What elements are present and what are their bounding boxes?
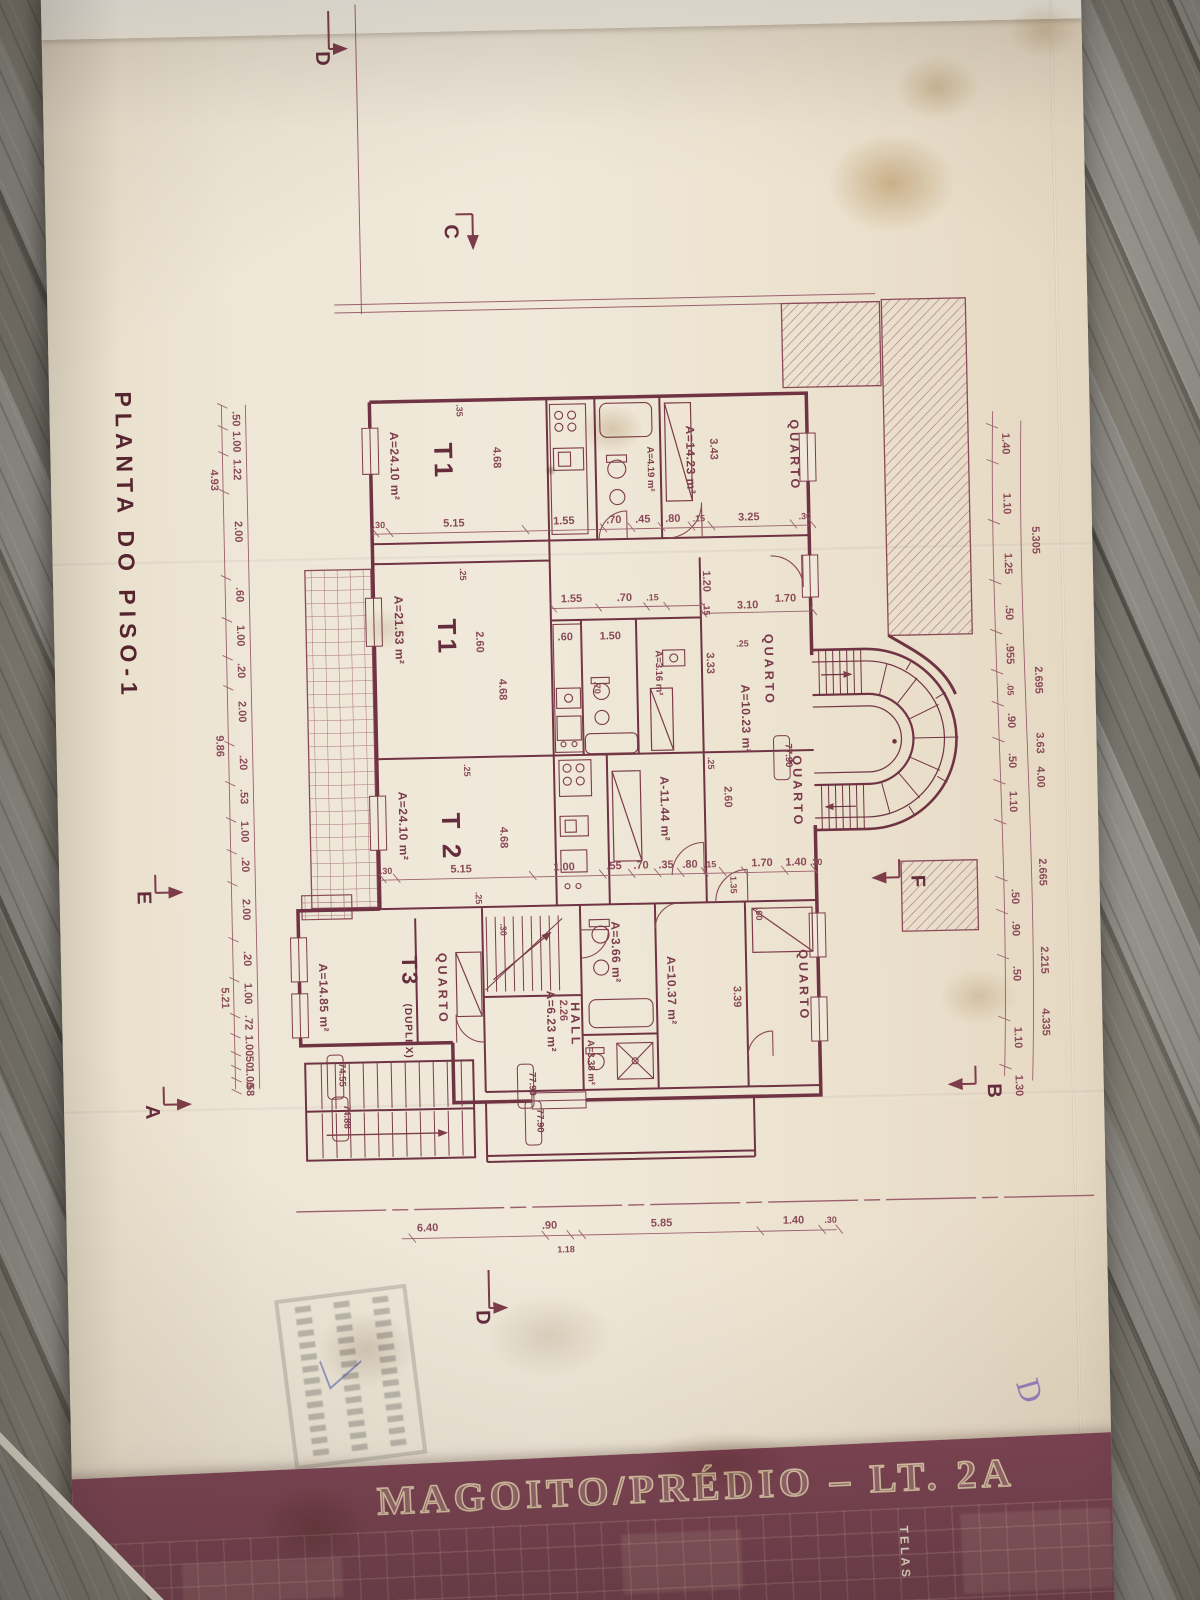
svg-text:.30: .30 bbox=[498, 923, 508, 936]
room-label-quarto-t3: QUARTO bbox=[435, 953, 451, 1025]
room-area: A=14.85 m² bbox=[316, 963, 331, 1032]
svg-text:.35: .35 bbox=[658, 859, 674, 871]
svg-text:.60: .60 bbox=[233, 587, 245, 603]
svg-text:.60: .60 bbox=[558, 631, 574, 643]
svg-text:.53: .53 bbox=[237, 789, 249, 805]
section-letter-c: C bbox=[440, 224, 462, 239]
room-label-quarto-bottom: QUARTO bbox=[796, 949, 812, 1021]
sheet-title: PLANTA DO PISO-1 bbox=[110, 391, 142, 701]
room-area: A=10.23 m² bbox=[738, 684, 753, 753]
svg-text:1.00: 1.00 bbox=[230, 431, 242, 453]
svg-text:2.00: 2.00 bbox=[232, 521, 244, 543]
svg-text:2.665: 2.665 bbox=[1036, 858, 1049, 886]
svg-text:.05: .05 bbox=[1005, 683, 1015, 696]
elevation-value: 74.88 bbox=[341, 1105, 352, 1129]
svg-text:6.40: 6.40 bbox=[417, 1222, 439, 1234]
room-label-t3-duplex: (DUPLEX) bbox=[402, 1003, 414, 1058]
svg-text:2.00: 2.00 bbox=[236, 701, 248, 723]
svg-text:1.00: 1.00 bbox=[553, 861, 575, 873]
svg-text:2.26: 2.26 bbox=[557, 1000, 569, 1022]
svg-text:3.63: 3.63 bbox=[1033, 732, 1045, 754]
room-area: A=14.23 m² bbox=[683, 425, 698, 494]
svg-text:1.18: 1.18 bbox=[557, 1244, 575, 1254]
svg-text:.80: .80 bbox=[682, 859, 698, 871]
svg-text:.50: .50 bbox=[1009, 889, 1021, 905]
svg-text:1.22: 1.22 bbox=[230, 459, 242, 481]
svg-text:.25: .25 bbox=[474, 892, 484, 905]
svg-text:1.70: 1.70 bbox=[775, 592, 797, 604]
section-letter-b: B bbox=[983, 1083, 1005, 1098]
room-label-hall: HALL bbox=[568, 1002, 583, 1048]
svg-text:1.00: 1.00 bbox=[238, 821, 250, 843]
right-dimension-chain: 1.40 1.10 1.25 .50 .955 .05 .90 .50 1.10… bbox=[999, 432, 1053, 1096]
room-label-t3: T3 bbox=[397, 955, 423, 987]
room-label-t1-mid: T1 bbox=[432, 618, 463, 657]
svg-text:3.33: 3.33 bbox=[704, 652, 716, 674]
ink-stamp bbox=[275, 1284, 427, 1469]
svg-text:1.10: 1.10 bbox=[1012, 1027, 1024, 1049]
svg-text:9.86: 9.86 bbox=[213, 735, 225, 757]
svg-text:.90: .90 bbox=[1009, 921, 1021, 937]
room-area: A=10.37 m² bbox=[664, 956, 679, 1025]
svg-text:3.39: 3.39 bbox=[731, 986, 743, 1008]
photo-of-floor-plan: PLANTA DO PISO-1 D C E F A B D bbox=[0, 0, 1200, 1600]
svg-text:1.25: 1.25 bbox=[1002, 553, 1014, 575]
svg-text:.50: .50 bbox=[1010, 966, 1022, 982]
svg-text:.50: .50 bbox=[1006, 753, 1018, 769]
svg-text:3.25: 3.25 bbox=[738, 511, 760, 523]
svg-text:1.55: 1.55 bbox=[561, 593, 583, 605]
elevation-value: 74.55 bbox=[336, 1063, 348, 1088]
elevation-value: 77.90 bbox=[534, 1109, 545, 1133]
main-curved-stair bbox=[812, 647, 961, 830]
room-area: A=24.10 m² bbox=[387, 432, 402, 501]
svg-text:.50: .50 bbox=[1003, 605, 1015, 621]
svg-text:5.21: 5.21 bbox=[219, 987, 231, 1009]
elevation-value: 77.90 bbox=[526, 1072, 537, 1096]
paper-sheet: PLANTA DO PISO-1 D C E F A B D bbox=[40, 0, 1115, 1600]
room-area: A-11.44 m² bbox=[657, 776, 672, 841]
room-label-t2: T 2 bbox=[436, 812, 467, 862]
svg-text:1.40: 1.40 bbox=[783, 1214, 805, 1226]
svg-text:.45: .45 bbox=[635, 513, 651, 525]
svg-text:.58: .58 bbox=[243, 1081, 255, 1097]
svg-text:.70: .70 bbox=[606, 514, 622, 526]
svg-text:.30: .30 bbox=[824, 1215, 837, 1225]
svg-text:.30: .30 bbox=[380, 866, 393, 876]
room-area: A=6.23 m² bbox=[544, 990, 559, 1052]
left-dimension-chain: .50 1.00 1.22 2.00 .60 1.00 .20 2.00 .20… bbox=[206, 411, 255, 1097]
svg-text:.25: .25 bbox=[462, 764, 472, 777]
section-letter-d: D bbox=[311, 51, 333, 66]
room-area: A=24.10 m² bbox=[395, 792, 410, 861]
svg-text:1.10: 1.10 bbox=[1000, 493, 1012, 515]
svg-text:.35: .35 bbox=[454, 404, 464, 417]
svg-text:1.55: 1.55 bbox=[553, 515, 575, 527]
faded-table-text bbox=[621, 1529, 744, 1594]
svg-text:.70: .70 bbox=[633, 860, 649, 872]
room-label-quarto-mid: QUARTO bbox=[761, 634, 777, 706]
svg-text:4.68: 4.68 bbox=[497, 827, 509, 849]
stamp-text-column bbox=[294, 1305, 329, 1458]
svg-text:.25: .25 bbox=[458, 568, 468, 581]
svg-text:1.20: 1.20 bbox=[700, 570, 712, 592]
svg-text:4.68: 4.68 bbox=[496, 679, 508, 701]
svg-text:1.30: 1.30 bbox=[1013, 1075, 1025, 1097]
svg-text:2.00: 2.00 bbox=[240, 899, 252, 921]
room-area: A=3.16 m² bbox=[653, 650, 665, 695]
svg-text:1.00: 1.00 bbox=[234, 625, 246, 647]
svg-text:.15: .15 bbox=[702, 603, 712, 616]
room-area: A=3.66 m² bbox=[608, 921, 623, 983]
room-area: A=21.53 m² bbox=[391, 596, 406, 665]
stamp-text-column bbox=[372, 1296, 407, 1449]
svg-text:5.15: 5.15 bbox=[450, 863, 472, 875]
svg-text:.50: .50 bbox=[229, 411, 241, 427]
svg-text:1.00: 1.00 bbox=[241, 983, 253, 1005]
title-block-label: TELAS bbox=[897, 1525, 913, 1580]
svg-text:3.43: 3.43 bbox=[707, 438, 719, 460]
svg-text:.20: .20 bbox=[237, 755, 249, 771]
svg-text:.20: .20 bbox=[241, 951, 253, 967]
svg-text:2.60: 2.60 bbox=[721, 786, 733, 808]
svg-text:2.695: 2.695 bbox=[1032, 666, 1045, 694]
dimension-row-top: .30 5.15 1.55 .70 .45 .80 .15 3.25 .30 bbox=[373, 510, 812, 531]
svg-text:2.215: 2.215 bbox=[1038, 946, 1051, 974]
svg-text:.15: .15 bbox=[646, 592, 659, 602]
svg-text:4.93: 4.93 bbox=[208, 469, 220, 491]
svg-text:2.60: 2.60 bbox=[473, 631, 485, 653]
svg-text:.90: .90 bbox=[542, 1220, 558, 1232]
svg-text:.25: .25 bbox=[736, 638, 749, 648]
svg-text:.72: .72 bbox=[242, 1015, 254, 1031]
duplex-stair bbox=[484, 915, 564, 992]
svg-text:1.50: 1.50 bbox=[599, 630, 621, 642]
svg-text:.30: .30 bbox=[810, 857, 823, 867]
svg-text:4.00: 4.00 bbox=[1034, 766, 1046, 788]
svg-text:1.10: 1.10 bbox=[1007, 791, 1019, 813]
svg-text:.80: .80 bbox=[665, 513, 681, 525]
doors bbox=[446, 500, 814, 1062]
svg-text:5.85: 5.85 bbox=[651, 1217, 673, 1229]
svg-text:.20: .20 bbox=[235, 663, 247, 679]
faded-table-text bbox=[182, 1557, 344, 1600]
room-area: A=4.19 m² bbox=[644, 446, 656, 491]
svg-text:.955: .955 bbox=[1003, 643, 1015, 665]
section-letter-a: A bbox=[141, 1105, 163, 1120]
faded-table-text bbox=[960, 1507, 1113, 1594]
room-area: A=3.38 m² bbox=[585, 1040, 597, 1085]
svg-text:.60: .60 bbox=[754, 908, 764, 921]
svg-text:.70: .70 bbox=[617, 592, 633, 604]
svg-text:.55: .55 bbox=[606, 860, 622, 872]
svg-text:5.305: 5.305 bbox=[1029, 526, 1042, 554]
svg-text:.30: .30 bbox=[373, 520, 386, 530]
room-label-t1-top: T1 bbox=[428, 442, 459, 481]
room-label-quarto-top: QUARTO bbox=[787, 419, 803, 491]
svg-text:.30: .30 bbox=[798, 511, 811, 521]
svg-text:3.10: 3.10 bbox=[737, 599, 759, 611]
svg-text:1.40: 1.40 bbox=[785, 856, 807, 868]
svg-text:.15: .15 bbox=[692, 513, 705, 523]
section-letter-e: E bbox=[133, 891, 155, 905]
svg-text:4.335: 4.335 bbox=[1039, 1008, 1052, 1036]
floor-plan-drawing: PLANTA DO PISO-1 D C E F A B D bbox=[91, 0, 1111, 1460]
svg-text:.20: .20 bbox=[239, 857, 251, 873]
svg-text:.70: .70 bbox=[592, 681, 602, 694]
svg-text:.90: .90 bbox=[1005, 713, 1017, 729]
svg-text:1.70: 1.70 bbox=[751, 857, 773, 869]
dimension-row-bottom: 6.40 .90 1.18 5.85 1.40 .30 bbox=[417, 1214, 838, 1258]
svg-text:5.15: 5.15 bbox=[443, 517, 465, 529]
svg-text:1.40: 1.40 bbox=[999, 433, 1011, 455]
svg-text:.25: .25 bbox=[706, 757, 716, 770]
room-label-quarto-right: QUARTO bbox=[790, 755, 806, 827]
section-letter-f: F bbox=[906, 875, 928, 888]
svg-text:4.68: 4.68 bbox=[490, 447, 502, 469]
section-letter-d2: D bbox=[471, 1310, 493, 1325]
svg-text:1.35: 1.35 bbox=[728, 876, 738, 894]
svg-text:.15: .15 bbox=[704, 859, 717, 869]
